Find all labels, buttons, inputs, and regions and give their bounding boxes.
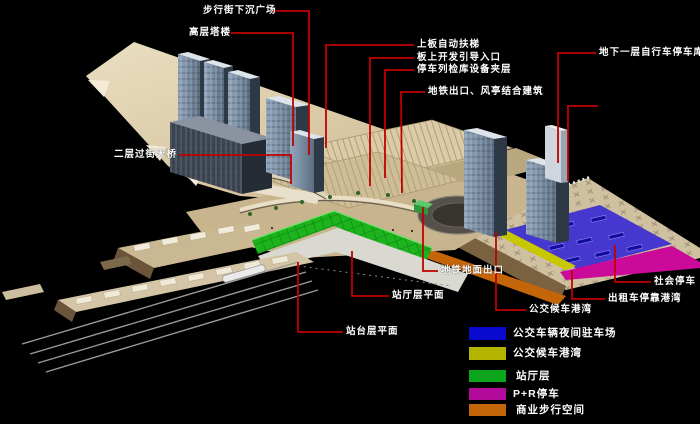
callout-metro-ground-exit: 地铁地面出口: [441, 265, 504, 276]
leader-b1-bicycle-parking-2: [568, 106, 598, 181]
callout-metro-exit-vent-building: 地铁出口、风亭结合建筑: [428, 86, 544, 97]
callout-deck-escalator: 上板自动扶梯: [417, 39, 480, 50]
callout-public-parking: 社会停车: [654, 276, 696, 287]
callout-taxi-bay: 出租车停靠港湾: [608, 293, 682, 304]
legend-label-commercial-walk: 商业步行空间: [516, 404, 585, 417]
platform-fragment: [2, 284, 44, 300]
tower: [290, 130, 324, 193]
tower: [545, 125, 568, 183]
platform-structure: [2, 252, 318, 372]
callout-pedestrian-sunken-plaza: 步行街下沉广场: [203, 5, 277, 16]
callout-bus-waiting-bay: 公交候车港湾: [529, 304, 592, 315]
callout-train-inspection-mezzanine: 停车列检库设备夹层: [417, 64, 512, 75]
render-3d-scene: [0, 0, 700, 424]
legend-swatch-bus-waiting-bay: [469, 347, 506, 360]
legend-swatch-commercial-walk: [469, 404, 506, 416]
legend-swatch-bus-night-parking: [469, 327, 506, 340]
callout-platform-level-plan: 站台层平面: [346, 326, 399, 337]
tower: [464, 128, 507, 237]
callout-deck-development-entrance: 板上开发引导入口: [417, 52, 501, 63]
callout-concourse-level-plan: 站厅层平面: [392, 290, 445, 301]
legend-label-bus-waiting-bay: 公交候车港湾: [513, 347, 582, 360]
legend-swatch-pr-parking: [469, 388, 506, 400]
axonometric-diagram: 步行街下沉广场 高层塔楼 上板自动扶梯 板上开发引导入口 停车列检库设备夹层 地…: [0, 0, 700, 424]
legend-label-concourse-level: 站厅层: [516, 370, 551, 383]
legend-label-bus-night-parking: 公交车辆夜间驻车场: [513, 327, 617, 340]
callout-l2-footbridge: 二层过街天桥: [114, 149, 177, 160]
legend-label-pr-parking: P+R停车: [513, 388, 560, 401]
callout-b1-bicycle-parking: 地下一层自行车停车库: [599, 47, 700, 58]
callout-highrise-tower: 高层塔楼: [189, 27, 231, 38]
legend-swatch-concourse-level: [469, 370, 506, 382]
